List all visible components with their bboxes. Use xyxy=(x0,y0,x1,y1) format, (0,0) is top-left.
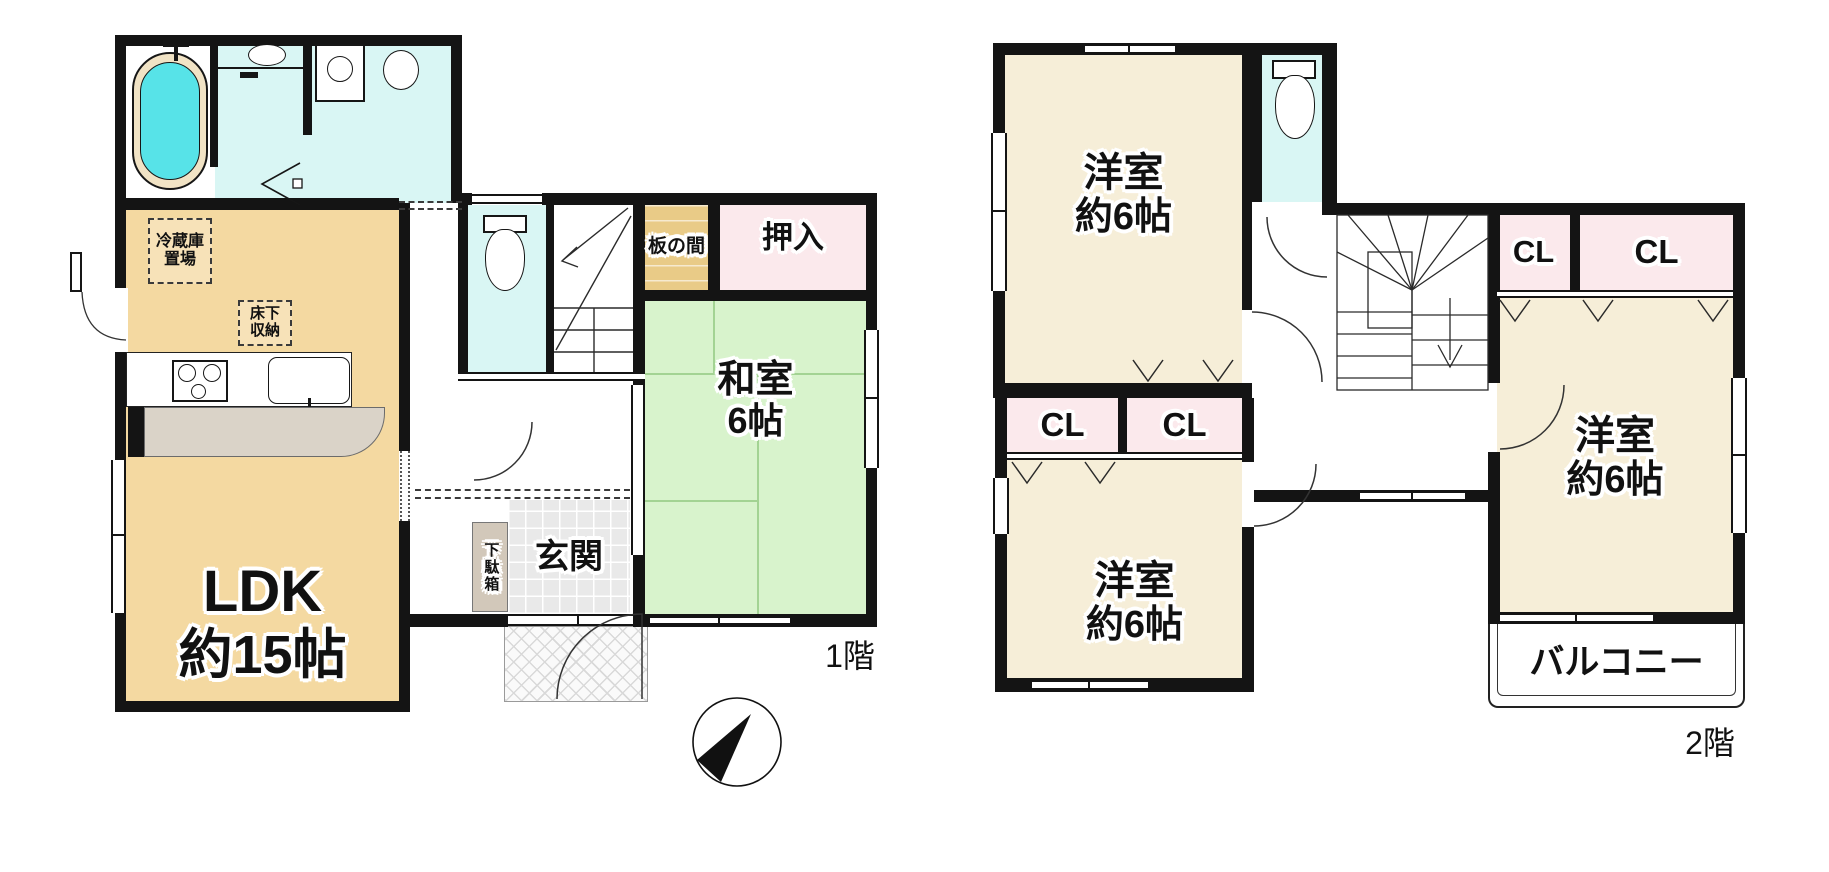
closet-d-label: CL xyxy=(1580,215,1733,290)
window xyxy=(472,194,542,204)
stove-burner xyxy=(191,384,206,399)
window-tick xyxy=(1731,454,1747,456)
compass-north-text: N xyxy=(741,698,769,727)
wall-segment xyxy=(458,193,472,205)
window-tick xyxy=(718,616,720,625)
ldk-size: 約15帖 xyxy=(178,625,346,685)
tatami-line xyxy=(645,500,759,502)
window-tick xyxy=(1128,44,1130,54)
fridge-space-label2: 置場 xyxy=(164,251,196,269)
wall-segment xyxy=(993,383,1252,398)
window-tick xyxy=(111,534,126,536)
wall-segment xyxy=(546,205,554,372)
western1-size: 約6帖 xyxy=(1075,196,1172,239)
window-tick xyxy=(864,397,879,399)
window xyxy=(1085,44,1175,54)
wall-segment xyxy=(1242,43,1252,310)
window xyxy=(650,616,790,625)
washitsu-label: 和室 6帖 xyxy=(645,345,866,455)
western2-size: 約6帖 xyxy=(1086,604,1183,647)
wall-segment xyxy=(1322,43,1337,215)
underfloor-storage-label: 床下 xyxy=(250,306,280,323)
overhang-line xyxy=(399,208,462,210)
wall-segment xyxy=(995,396,1007,692)
step-line xyxy=(415,497,630,499)
window-tick xyxy=(1088,680,1090,690)
floor1-label: 1階 xyxy=(798,636,902,678)
underfloor-storage-box: 床下 収納 xyxy=(238,300,292,346)
stove-burner xyxy=(178,364,196,382)
bath-faucet-icon xyxy=(163,40,189,47)
window xyxy=(111,460,126,613)
itanoma-label: 板の間 xyxy=(641,231,712,263)
wall-segment xyxy=(303,35,312,135)
ldk-name: LDK xyxy=(203,560,322,625)
wall-segment xyxy=(1322,203,1745,215)
window xyxy=(993,478,1009,534)
closet-d-text: CL xyxy=(1635,234,1679,271)
washing-machine-drum xyxy=(327,56,353,82)
closet-c-label: CL xyxy=(1497,215,1570,290)
bath-faucet-icon xyxy=(174,47,178,61)
wall-segment xyxy=(399,203,410,451)
dining-counter xyxy=(144,407,385,457)
wall-segment xyxy=(542,193,645,205)
pocket-door xyxy=(400,451,410,521)
sliding-door xyxy=(458,372,645,381)
wall-segment xyxy=(115,701,410,712)
compass-north-label: N xyxy=(734,694,773,733)
wall-segment xyxy=(128,407,144,457)
genkan-name: 玄関 xyxy=(535,538,603,576)
wall-segment xyxy=(451,35,462,203)
laundry-sink-icon xyxy=(383,50,419,90)
oshiire-name: 押入 xyxy=(762,221,824,256)
door-gap xyxy=(113,288,128,352)
western1-name: 洋室 xyxy=(1084,151,1164,196)
window xyxy=(1032,680,1148,690)
kitchen-sink-icon xyxy=(268,357,350,404)
wall-segment xyxy=(1252,55,1262,202)
western2-label: 洋室 約6帖 xyxy=(1017,540,1252,665)
closet-c-text: CL xyxy=(1513,235,1554,270)
toilet-bowl-icon xyxy=(1275,75,1315,139)
floor2-label: 2階 xyxy=(1658,723,1762,765)
window-tick xyxy=(577,614,579,626)
bathtub-water xyxy=(140,62,200,180)
closet-rail xyxy=(1007,452,1242,460)
ldk-label: LDK 約15帖 xyxy=(126,548,399,698)
closet-b-text: CL xyxy=(1163,407,1207,444)
window-tick xyxy=(1411,491,1413,501)
washitsu-size: 6帖 xyxy=(727,401,783,441)
window xyxy=(864,330,879,468)
getabako: 下駄箱 xyxy=(472,522,508,612)
balcony-label: バルコニー xyxy=(1488,630,1745,696)
sliding-door xyxy=(631,385,645,555)
floor-plan-canvas: 冷蔵庫 置場 床下 収納 下駄箱 LDK 約15帖 和室 6帖 押入 板の間 玄… xyxy=(0,0,1829,872)
window-tick xyxy=(1575,613,1577,623)
fridge-space-box: 冷蔵庫 置場 xyxy=(148,218,212,284)
wall-segment xyxy=(1118,398,1127,452)
wall-segment xyxy=(210,35,218,167)
washroom-counter-line xyxy=(218,67,303,69)
floor1-text: 1階 xyxy=(825,639,875,675)
western3-name: 洋室 xyxy=(1575,414,1655,459)
stairs-2f xyxy=(1337,215,1488,390)
toilet-bowl-icon xyxy=(485,229,525,291)
oshiire-label: 押入 xyxy=(720,207,866,269)
door-arc xyxy=(1252,312,1322,382)
closet-a-text: CL xyxy=(1041,407,1085,444)
itanoma-name: 板の間 xyxy=(648,236,705,257)
closet-b-label: CL xyxy=(1127,398,1242,452)
door-arc xyxy=(1267,217,1327,277)
entrance-porch xyxy=(504,626,648,702)
overhang-line xyxy=(399,201,462,203)
fridge-space-label: 冷蔵庫 xyxy=(156,233,204,251)
washitsu-name: 和室 xyxy=(717,359,793,402)
western3-label: 洋室 約6帖 xyxy=(1497,398,1733,518)
floor2-text: 2階 xyxy=(1685,726,1735,762)
wall-segment xyxy=(633,555,645,614)
wall-segment xyxy=(115,198,399,210)
wall-segment xyxy=(458,205,468,372)
western2-name: 洋室 xyxy=(1095,559,1175,604)
door-arc xyxy=(474,422,532,480)
stairs-1f-area xyxy=(554,205,633,372)
wall-segment xyxy=(633,290,877,301)
wall-segment xyxy=(399,614,508,627)
underfloor-storage-label2: 収納 xyxy=(250,323,280,340)
washbasin-icon xyxy=(248,44,286,66)
wall-segment xyxy=(1242,398,1254,462)
western3-size: 約6帖 xyxy=(1566,459,1663,502)
step-line xyxy=(415,489,630,491)
balcony-text: バルコニー xyxy=(1529,643,1703,682)
western1-label: 洋室 約6帖 xyxy=(1005,130,1242,260)
getabako-label: 下駄箱 xyxy=(482,542,499,593)
closet-a-label: CL xyxy=(1007,398,1118,452)
closet-rail xyxy=(1497,290,1733,298)
genkan-label: 玄関 xyxy=(508,534,630,580)
exterior-door-panel xyxy=(70,252,82,292)
wall-segment xyxy=(1570,215,1580,290)
wall-segment xyxy=(633,193,877,205)
washroom-faucet-icon xyxy=(240,72,258,78)
stove-burner xyxy=(203,364,221,382)
